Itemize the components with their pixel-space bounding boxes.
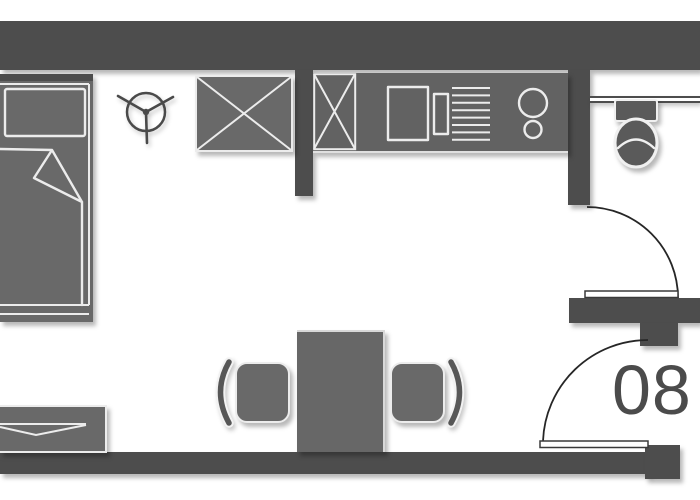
chair-left-backrest xyxy=(210,355,238,430)
bed-headboard xyxy=(0,74,93,81)
cooktop-burner-small xyxy=(525,121,542,138)
bathroom-door-leaf xyxy=(585,291,678,298)
toilet xyxy=(608,97,666,177)
sideboard-handle xyxy=(0,424,86,435)
chair-right-seat xyxy=(390,362,445,423)
bathroom-door-arc xyxy=(587,207,678,298)
fan-hub xyxy=(143,109,149,115)
kitchen-sink xyxy=(388,87,428,140)
dish-rack xyxy=(452,88,490,140)
sideboard xyxy=(0,405,107,453)
entry-door-leaf xyxy=(540,441,648,448)
wall-kitchen-bathroom xyxy=(568,70,590,205)
bathroom-door xyxy=(558,198,693,306)
wall-stub-wardrobe-kitchen xyxy=(295,70,313,196)
wall-bottom xyxy=(0,452,650,474)
chair-left-seat xyxy=(235,362,290,423)
kitchen-counter xyxy=(313,73,568,153)
wardrobe xyxy=(195,75,293,152)
dining-table xyxy=(297,330,385,452)
chair-right-backrest xyxy=(442,355,470,430)
kitchen-cabinet-x xyxy=(314,74,355,149)
faucet xyxy=(434,94,448,134)
wardrobe-x xyxy=(197,77,291,150)
cooktop-burner-large xyxy=(519,89,547,117)
room-number-label: 08 xyxy=(612,355,692,425)
wall-top xyxy=(0,21,700,70)
bed xyxy=(0,72,96,324)
toilet-bowl xyxy=(615,119,657,167)
floor-plan: 08 xyxy=(0,0,700,500)
ceiling-fan-icon xyxy=(113,82,179,148)
